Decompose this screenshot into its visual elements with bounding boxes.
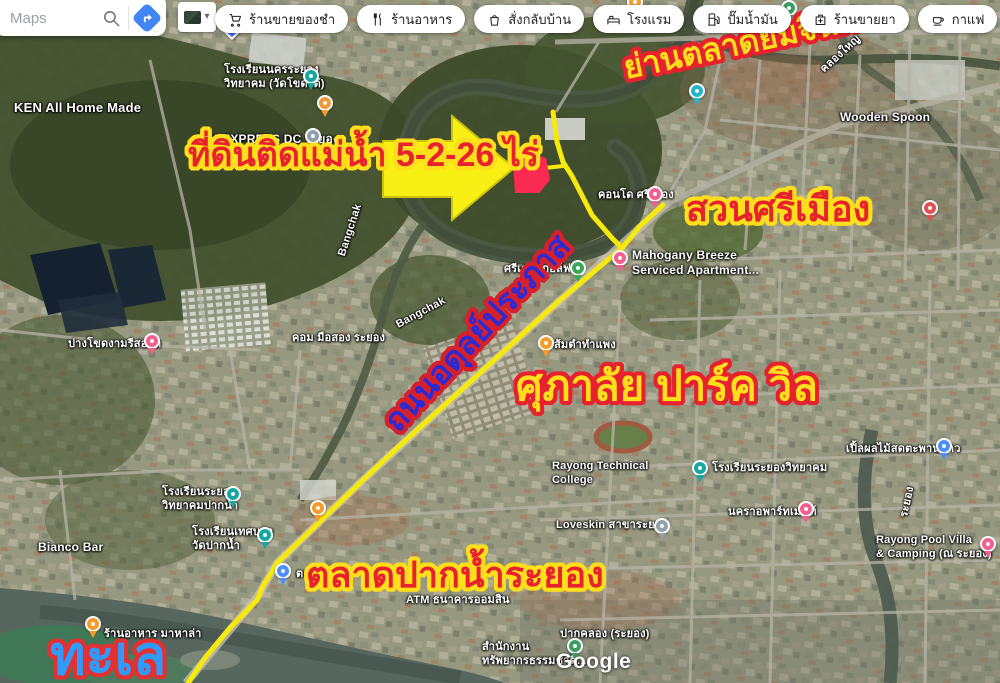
divider bbox=[128, 6, 129, 30]
map-label[interactable]: Loveskin สาขาระยอง bbox=[556, 519, 667, 533]
map-label[interactable]: Rayong Technical College bbox=[552, 460, 649, 488]
bed-icon bbox=[606, 12, 621, 27]
map-label[interactable]: Mahogany Breeze Serviced Apartment... bbox=[632, 248, 759, 278]
search-icon[interactable] bbox=[102, 9, 121, 28]
pill-label: ร้านอาหาร bbox=[391, 9, 452, 30]
category-pill-6[interactable]: ร้านขายยา bbox=[800, 5, 909, 33]
map-label[interactable]: ATM ธนาคารออมสิน bbox=[406, 594, 510, 608]
map-label[interactable]: Wooden Spoon bbox=[840, 110, 930, 125]
map-label[interactable]: คอม มือสอง ระยอง bbox=[292, 332, 385, 346]
google-watermark: Google bbox=[556, 650, 631, 674]
category-pill-2[interactable]: ร้านอาหาร bbox=[357, 5, 465, 33]
map-label[interactable]: ร้านอาหาร มาหาล่า bbox=[104, 628, 202, 642]
category-pills: ร้านขายของชำร้านอาหารสั่งกลับบ้านโรงแรมป… bbox=[215, 5, 997, 33]
map-label[interactable]: ตลาด bbox=[296, 568, 324, 582]
map-label[interactable]: ส้มตำทำแพง bbox=[554, 339, 616, 353]
coffee-icon bbox=[931, 12, 946, 27]
pharmacy-icon bbox=[813, 12, 828, 27]
map-label[interactable]: KEN All Home Made bbox=[14, 100, 141, 116]
restaurant-icon bbox=[370, 12, 385, 27]
category-pill-5[interactable]: ปั๊มน้ำมัน bbox=[693, 5, 790, 33]
category-pill-3[interactable]: สั่งกลับบ้าน bbox=[474, 5, 584, 33]
map-label[interactable]: Rayong Pool Villa & Camping (ณ ระยอง) bbox=[876, 534, 992, 562]
map-label[interactable]: ศรีเดชะกอล์ฟ bbox=[504, 263, 571, 277]
search-input[interactable] bbox=[8, 9, 102, 28]
google-maps-app: KEN All Home Madeโรงเรียนนครระยอง วิทยาค… bbox=[0, 0, 1000, 683]
takeout-icon bbox=[487, 12, 502, 27]
directions-arrow-icon bbox=[140, 11, 155, 26]
pill-label: ร้านขายของชำ bbox=[249, 9, 335, 30]
search-box bbox=[0, 0, 166, 36]
map-type-selector[interactable]: ▾ bbox=[178, 2, 216, 32]
cart-icon bbox=[228, 12, 243, 27]
map-label[interactable]: Bianco Bar bbox=[38, 540, 103, 555]
pill-label: ปั๊มน้ำมัน bbox=[727, 9, 777, 30]
satellite-thumbnail bbox=[184, 11, 201, 24]
category-pill-7[interactable]: กาแฟ bbox=[918, 5, 998, 33]
pill-label: กาแฟ bbox=[952, 9, 985, 30]
pill-label: ร้านขายยา bbox=[834, 9, 896, 30]
pill-label: โรงแรม bbox=[627, 9, 671, 30]
category-pill-1[interactable]: ร้านขายของชำ bbox=[215, 5, 348, 33]
fuel-icon bbox=[706, 12, 721, 27]
caret-down-icon: ▾ bbox=[204, 12, 209, 22]
directions-button[interactable] bbox=[131, 2, 162, 33]
category-pill-4[interactable]: โรงแรม bbox=[593, 5, 684, 33]
map-label[interactable]: โรงเรียนระยองวิทยาคม bbox=[712, 462, 827, 476]
pill-label: สั่งกลับบ้าน bbox=[508, 9, 571, 30]
